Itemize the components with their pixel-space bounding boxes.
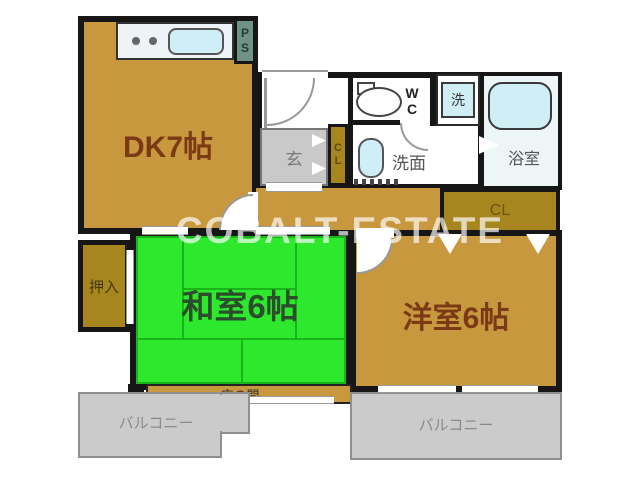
toilet-label: WC (402, 80, 422, 122)
window-opening (250, 396, 334, 404)
floor-plan: PS DK7帖 玄 CL WC 洗 浴室 洗面 CL 押入 和室6帖 (0, 0, 640, 480)
fusuma-opening (126, 250, 134, 324)
wall (353, 120, 400, 125)
balcony-seam (218, 395, 224, 431)
watermark: COBALT-ESTATE (140, 210, 540, 250)
kitchen-sink-icon (168, 28, 224, 55)
wall (348, 72, 353, 190)
washing-machine-icon: 洗 (441, 82, 475, 118)
toilet-bowl-icon (356, 87, 402, 117)
room-western-label: 洋室6帖 (360, 296, 552, 334)
balcony-left-extension (220, 392, 250, 434)
room-japanese-label: 和室6帖 (140, 284, 340, 324)
window-opening (378, 385, 456, 393)
bathtub-icon (488, 82, 552, 130)
balcony-left-label: バルコニー (96, 412, 216, 432)
tatami-mat (241, 338, 346, 384)
stove-burner-icon (149, 37, 157, 45)
balcony-right-label: バルコニー (396, 414, 516, 434)
bath-mat-icon (354, 179, 398, 185)
stove-burner-icon (132, 37, 140, 45)
tatami-mat (136, 338, 243, 384)
window-opening (462, 385, 538, 393)
room-dk-label: DK7帖 (83, 126, 253, 162)
bathroom-label: 浴室 (496, 146, 552, 168)
washbasin-icon (358, 138, 384, 178)
entrance-step-opening (266, 182, 322, 192)
washroom-label: 洗面 (384, 150, 434, 172)
oshiire-closet-label: 押入 (78, 240, 130, 332)
hall-closet-label: CL (328, 124, 348, 186)
pipe-space-label: PS (234, 18, 256, 64)
